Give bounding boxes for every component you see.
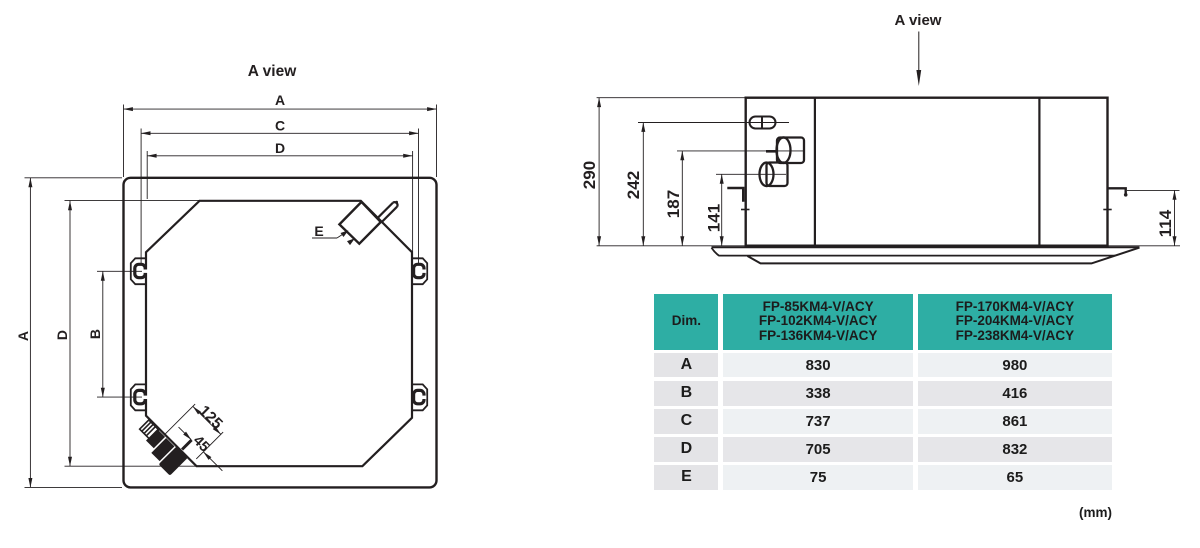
svg-text:242: 242 xyxy=(624,171,643,199)
svg-text:C: C xyxy=(275,118,285,134)
svg-text:A: A xyxy=(15,331,31,341)
svg-text:B: B xyxy=(87,329,103,339)
svg-text:45: 45 xyxy=(190,433,213,456)
svg-text:A: A xyxy=(275,92,285,108)
svg-text:114: 114 xyxy=(1156,209,1175,237)
svg-text:290: 290 xyxy=(580,161,599,189)
svg-text:A view: A view xyxy=(895,12,942,29)
svg-text:141: 141 xyxy=(705,204,724,232)
svg-text:E: E xyxy=(314,223,323,239)
svg-text:A view: A view xyxy=(248,63,297,80)
svg-text:187: 187 xyxy=(664,190,683,218)
svg-text:D: D xyxy=(54,330,70,340)
svg-text:D: D xyxy=(275,140,285,156)
svg-text:125: 125 xyxy=(195,402,226,433)
